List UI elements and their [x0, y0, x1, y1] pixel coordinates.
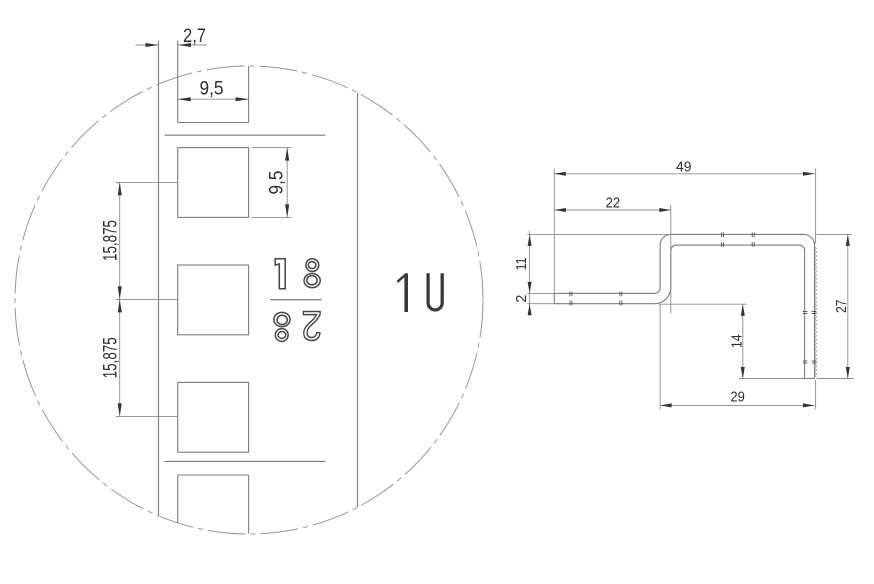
svg-text:2: 2 [301, 302, 322, 349]
svg-text:29: 29 [730, 390, 745, 406]
svg-text:2: 2 [514, 295, 530, 303]
svg-text:11: 11 [514, 257, 530, 270]
svg-text:27: 27 [834, 300, 850, 314]
svg-text:9,5: 9,5 [267, 171, 288, 195]
svg-text:9,5: 9,5 [200, 78, 224, 99]
svg-text:22: 22 [606, 195, 621, 211]
svg-text:15,875: 15,875 [101, 220, 122, 261]
svg-text:2,7: 2,7 [183, 26, 206, 47]
svg-text:14: 14 [729, 335, 745, 349]
svg-text:49: 49 [676, 159, 692, 175]
svg-text:15,875: 15,875 [101, 337, 122, 378]
